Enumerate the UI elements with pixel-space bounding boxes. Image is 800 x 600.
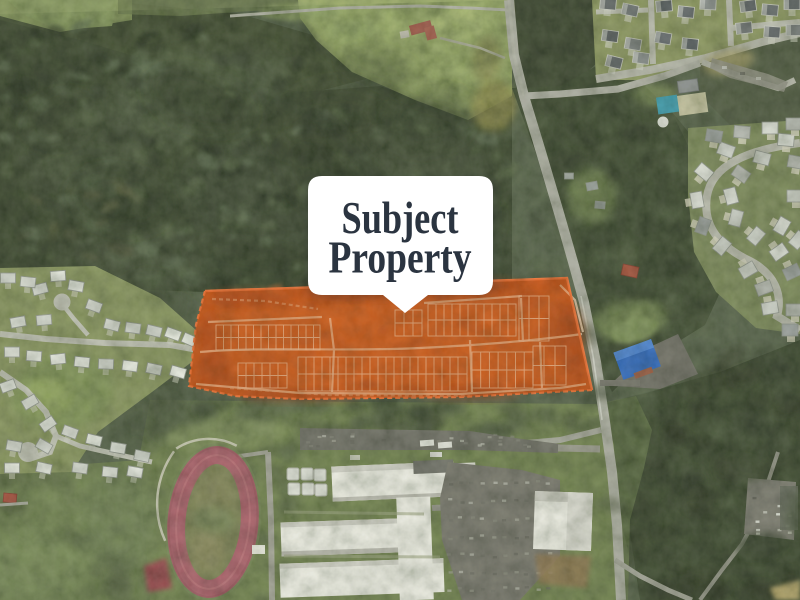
svg-text:Property: Property: [329, 233, 472, 283]
